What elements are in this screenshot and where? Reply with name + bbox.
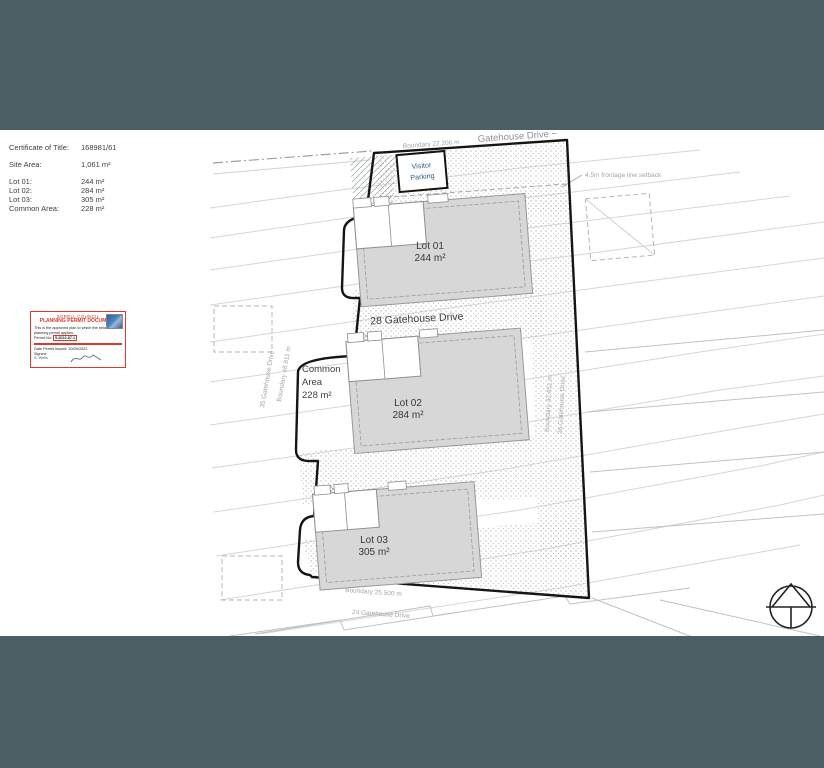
common-area-row: Common Area: 228 m² (9, 204, 116, 213)
visitor-parking-label-1: Visitor (411, 160, 432, 171)
lot-02-area: 284 m² (392, 410, 424, 421)
lot-01-schedule-value: 244 m² (81, 177, 104, 186)
site-area-value: 1,061 m² (81, 160, 111, 169)
stamp-permit-label: Permit No: (34, 336, 52, 340)
road-centreline (213, 151, 372, 174)
common-area-label-3: 228 m² (302, 390, 332, 401)
planning-permit-stamp: SORELL COUNCIL PLANNING PERMIT DOCUMENT … (30, 311, 126, 368)
lot-01-label: Lot 01 (416, 241, 444, 252)
viewer-backdrop-bottom (0, 636, 824, 768)
lot-02-row: Lot 02: 284 m² (9, 186, 116, 195)
north-point-icon (766, 584, 816, 628)
road-edge-lines (230, 588, 690, 636)
lot-03-building (312, 474, 482, 590)
common-area-label-1: Common (302, 364, 341, 375)
certificate-label: Certificate of Title: (9, 143, 81, 152)
lot-03-schedule-value: 305 m² (81, 195, 104, 204)
lot-02-label: Lot 02 (394, 398, 422, 409)
common-area-label-2: Area (302, 377, 323, 388)
stamp-body-line-2: planning permit applies. (34, 331, 122, 336)
certificate-value: 168981/61 (81, 143, 116, 152)
common-area-schedule-value: 228 m² (81, 204, 104, 213)
site-area-label: Site Area: (9, 160, 81, 169)
lot-02-building (345, 320, 529, 453)
lot-01-row: Lot 01: 244 m² (9, 177, 116, 186)
neighbor-lot-lines (585, 330, 824, 640)
viewer-backdrop-top (0, 0, 824, 130)
setback-label: 4.5m frontage line setback (585, 172, 662, 179)
boundary-bottom-label: Boundary 25.500 m (345, 587, 402, 598)
lot-01-schedule-label: Lot 01: (9, 177, 81, 186)
lot-03-schedule-label: Lot 03: (9, 195, 81, 204)
lot-02-schedule-label: Lot 02: (9, 186, 81, 195)
boundary-left-label: Boundary 48.811 m (276, 346, 293, 403)
lot-02-schedule-value: 284 m² (81, 186, 104, 195)
lot-03-area: 305 m² (358, 547, 390, 558)
common-area-schedule-label: Common Area: (9, 204, 81, 213)
title-block: Certificate of Title: 168981/61 Site Are… (9, 143, 116, 213)
stamp-permit-number: 5.2022.87.1 (53, 335, 77, 341)
signature-icon (69, 351, 103, 365)
site-area-row: Site Area: 1,061 m² (9, 160, 116, 169)
neighbor-left-label: 35 Gatehouse Drive (259, 350, 276, 409)
stamp-map-thumbnail (106, 314, 123, 329)
lot-03-row: Lot 03: 305 m² (9, 195, 116, 204)
certificate-of-title-row: Certificate of Title: 168981/61 (9, 143, 116, 152)
lot-01-area: 244 m² (414, 253, 446, 264)
lot-03-label: Lot 03 (360, 535, 388, 546)
stamp-divider (34, 343, 122, 345)
